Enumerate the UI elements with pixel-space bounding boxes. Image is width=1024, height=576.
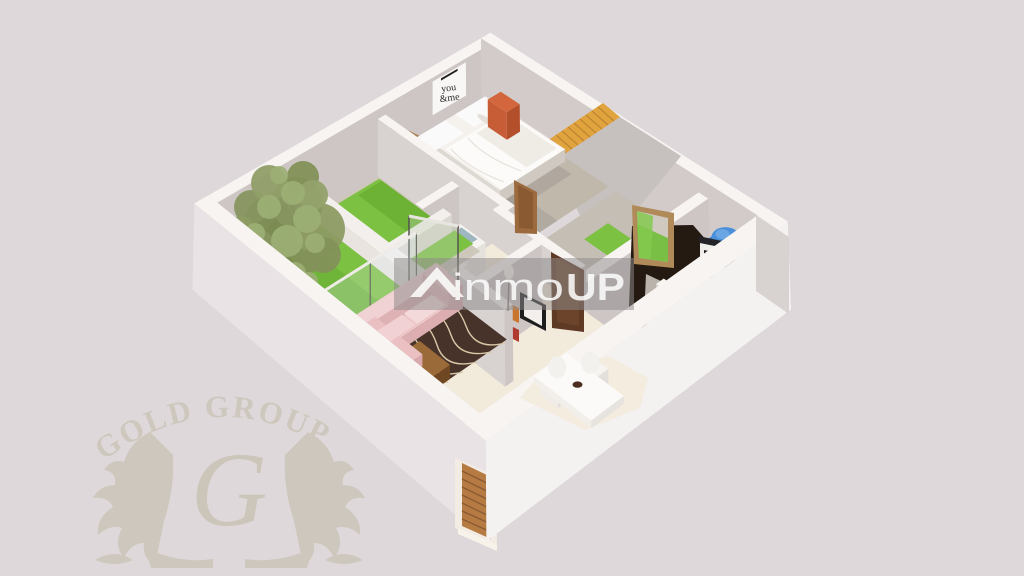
svg-text:inmo: inmo [452, 267, 564, 309]
svg-text:UP: UP [566, 267, 625, 309]
svg-text:G: G [191, 431, 268, 548]
